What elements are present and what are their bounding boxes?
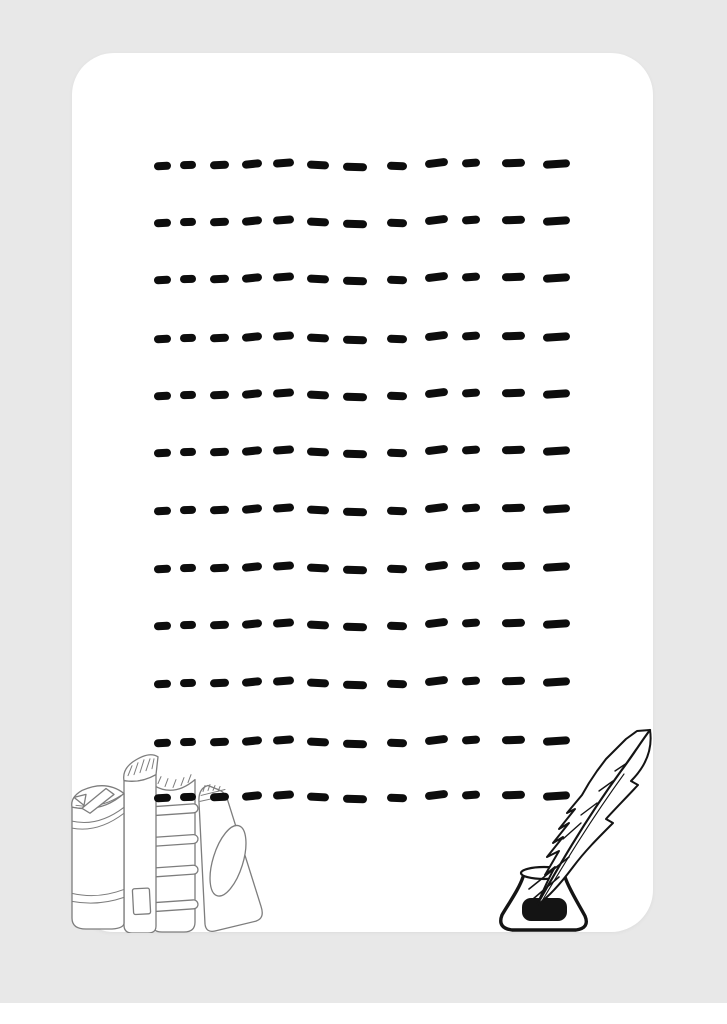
dash-mark bbox=[242, 619, 263, 629]
dash-mark bbox=[273, 331, 295, 340]
dash-mark bbox=[180, 334, 196, 343]
dash-mark bbox=[307, 678, 329, 687]
dash-mark bbox=[210, 738, 229, 747]
dash-mark bbox=[462, 790, 481, 799]
dash-mark bbox=[343, 336, 367, 345]
dash-mark bbox=[210, 506, 229, 515]
dash-mark bbox=[307, 505, 329, 514]
dash-mark bbox=[210, 679, 229, 688]
dash-mark bbox=[543, 446, 570, 456]
dash-mark bbox=[273, 735, 295, 744]
dash-mark bbox=[180, 218, 196, 227]
dash-mark bbox=[210, 391, 229, 400]
dash-mark bbox=[343, 450, 367, 459]
dash-mark bbox=[242, 159, 263, 169]
dash-mark bbox=[154, 162, 171, 171]
dash-mark bbox=[154, 507, 171, 516]
dash-mark bbox=[462, 331, 481, 340]
dash-mark bbox=[343, 740, 367, 749]
dash-mark bbox=[273, 158, 295, 167]
dash-mark bbox=[273, 215, 295, 224]
dash-mark bbox=[425, 331, 449, 342]
dash-mark bbox=[387, 680, 407, 689]
dash-mark bbox=[543, 332, 570, 342]
dash-mark bbox=[273, 618, 295, 627]
dash-mark bbox=[343, 795, 367, 804]
dash-mark bbox=[154, 335, 171, 344]
dash-mark bbox=[425, 735, 449, 746]
dash-mark bbox=[242, 216, 263, 226]
dash-mark bbox=[543, 791, 570, 801]
dash-mark bbox=[387, 276, 407, 285]
dash-mark bbox=[387, 449, 407, 458]
dash-mark bbox=[273, 445, 295, 454]
page-background bbox=[0, 0, 727, 1024]
dash-mark bbox=[543, 504, 570, 514]
dash-mark bbox=[425, 215, 449, 226]
dash-mark bbox=[502, 159, 525, 168]
dash-mark bbox=[425, 503, 449, 514]
dash-mark bbox=[307, 333, 329, 342]
dash-mark bbox=[387, 794, 407, 803]
dash-mark bbox=[343, 277, 367, 286]
dash-mark bbox=[242, 273, 263, 283]
dash-mark bbox=[462, 735, 481, 744]
dash-mark bbox=[307, 447, 329, 456]
dash-mark bbox=[462, 561, 481, 570]
dash-mark bbox=[502, 446, 525, 455]
dash-mark bbox=[343, 163, 367, 172]
dash-mark bbox=[154, 392, 171, 401]
dash-mark bbox=[502, 332, 525, 341]
dash-mark bbox=[543, 273, 570, 283]
dash-mark bbox=[387, 162, 407, 171]
dash-mark bbox=[425, 272, 449, 283]
dash-mark bbox=[502, 736, 525, 745]
dash-mark bbox=[502, 504, 525, 513]
dash-mark bbox=[462, 388, 481, 397]
dash-mark bbox=[273, 503, 295, 512]
dash-mark bbox=[210, 793, 229, 802]
dash-mark bbox=[307, 792, 329, 801]
dash-mark bbox=[343, 393, 367, 402]
dash-mark bbox=[273, 388, 295, 397]
dash-mark bbox=[502, 791, 525, 800]
dash-mark bbox=[242, 446, 263, 456]
dash-mark bbox=[343, 566, 367, 575]
dash-mark bbox=[273, 272, 295, 281]
dash-mark bbox=[210, 275, 229, 284]
dash-mark bbox=[210, 334, 229, 343]
dash-mark bbox=[154, 565, 171, 574]
dash-mark bbox=[343, 681, 367, 690]
dash-mark bbox=[543, 736, 570, 746]
dash-mark bbox=[242, 562, 263, 572]
dash-mark bbox=[307, 737, 329, 746]
dash-mark bbox=[210, 621, 229, 630]
dash-mark bbox=[154, 680, 171, 689]
dash-mark bbox=[307, 217, 329, 226]
dash-mark bbox=[543, 562, 570, 572]
dash-mark bbox=[343, 220, 367, 229]
dash-mark bbox=[462, 503, 481, 512]
dash-mark bbox=[210, 564, 229, 573]
dash-mark bbox=[307, 274, 329, 283]
dash-mark bbox=[462, 158, 481, 167]
dash-mark bbox=[387, 622, 407, 631]
dash-mark bbox=[425, 445, 449, 456]
dash-mark bbox=[154, 276, 171, 285]
dash-mark bbox=[242, 389, 263, 399]
dash-mark bbox=[154, 449, 171, 458]
dash-mark bbox=[180, 679, 196, 688]
dash-mark bbox=[180, 391, 196, 400]
dash-mark bbox=[462, 445, 481, 454]
dash-mark bbox=[425, 676, 449, 687]
dash-mark bbox=[502, 273, 525, 282]
dash-mark bbox=[387, 392, 407, 401]
dash-mark bbox=[180, 621, 196, 630]
dash-mark bbox=[343, 623, 367, 632]
dash-mark bbox=[543, 677, 570, 687]
dash-mark bbox=[387, 219, 407, 228]
dash-mark bbox=[425, 388, 449, 399]
dash-rows-layer bbox=[0, 0, 727, 1024]
dash-mark bbox=[180, 738, 196, 747]
dash-mark bbox=[502, 619, 525, 628]
dash-mark bbox=[273, 561, 295, 570]
dash-mark bbox=[462, 215, 481, 224]
dash-mark bbox=[307, 390, 329, 399]
dash-mark bbox=[343, 508, 367, 517]
dash-mark bbox=[154, 739, 171, 748]
dash-mark bbox=[242, 791, 263, 801]
dash-mark bbox=[273, 790, 295, 799]
dash-mark bbox=[180, 161, 196, 170]
dash-mark bbox=[180, 506, 196, 515]
dash-mark bbox=[387, 335, 407, 344]
dash-mark bbox=[273, 676, 295, 685]
dash-mark bbox=[210, 218, 229, 227]
dash-mark bbox=[387, 565, 407, 574]
dash-mark bbox=[425, 158, 449, 169]
dash-mark bbox=[425, 790, 449, 801]
dash-mark bbox=[462, 676, 481, 685]
dash-mark bbox=[425, 561, 449, 572]
dash-mark bbox=[543, 619, 570, 629]
dash-mark bbox=[180, 275, 196, 284]
dash-mark bbox=[242, 677, 263, 687]
dash-mark bbox=[307, 563, 329, 572]
dash-mark bbox=[543, 216, 570, 226]
dash-mark bbox=[154, 794, 171, 803]
dash-mark bbox=[307, 620, 329, 629]
dash-mark bbox=[210, 448, 229, 457]
dash-mark bbox=[180, 448, 196, 457]
dash-mark bbox=[462, 618, 481, 627]
dash-mark bbox=[387, 739, 407, 748]
dash-mark bbox=[242, 332, 263, 342]
dash-mark bbox=[242, 736, 263, 746]
dash-mark bbox=[502, 389, 525, 398]
dash-mark bbox=[425, 618, 449, 629]
dash-mark bbox=[502, 216, 525, 225]
dash-mark bbox=[502, 677, 525, 686]
dash-mark bbox=[502, 562, 525, 571]
dash-mark bbox=[180, 564, 196, 573]
dash-mark bbox=[462, 272, 481, 281]
dash-mark bbox=[543, 389, 570, 399]
dash-mark bbox=[242, 504, 263, 514]
dash-mark bbox=[154, 622, 171, 631]
dash-mark bbox=[387, 507, 407, 516]
dash-mark bbox=[210, 161, 229, 170]
dash-mark bbox=[154, 219, 171, 228]
dash-mark bbox=[180, 793, 196, 802]
dash-mark bbox=[307, 160, 329, 169]
dash-mark bbox=[543, 159, 570, 169]
